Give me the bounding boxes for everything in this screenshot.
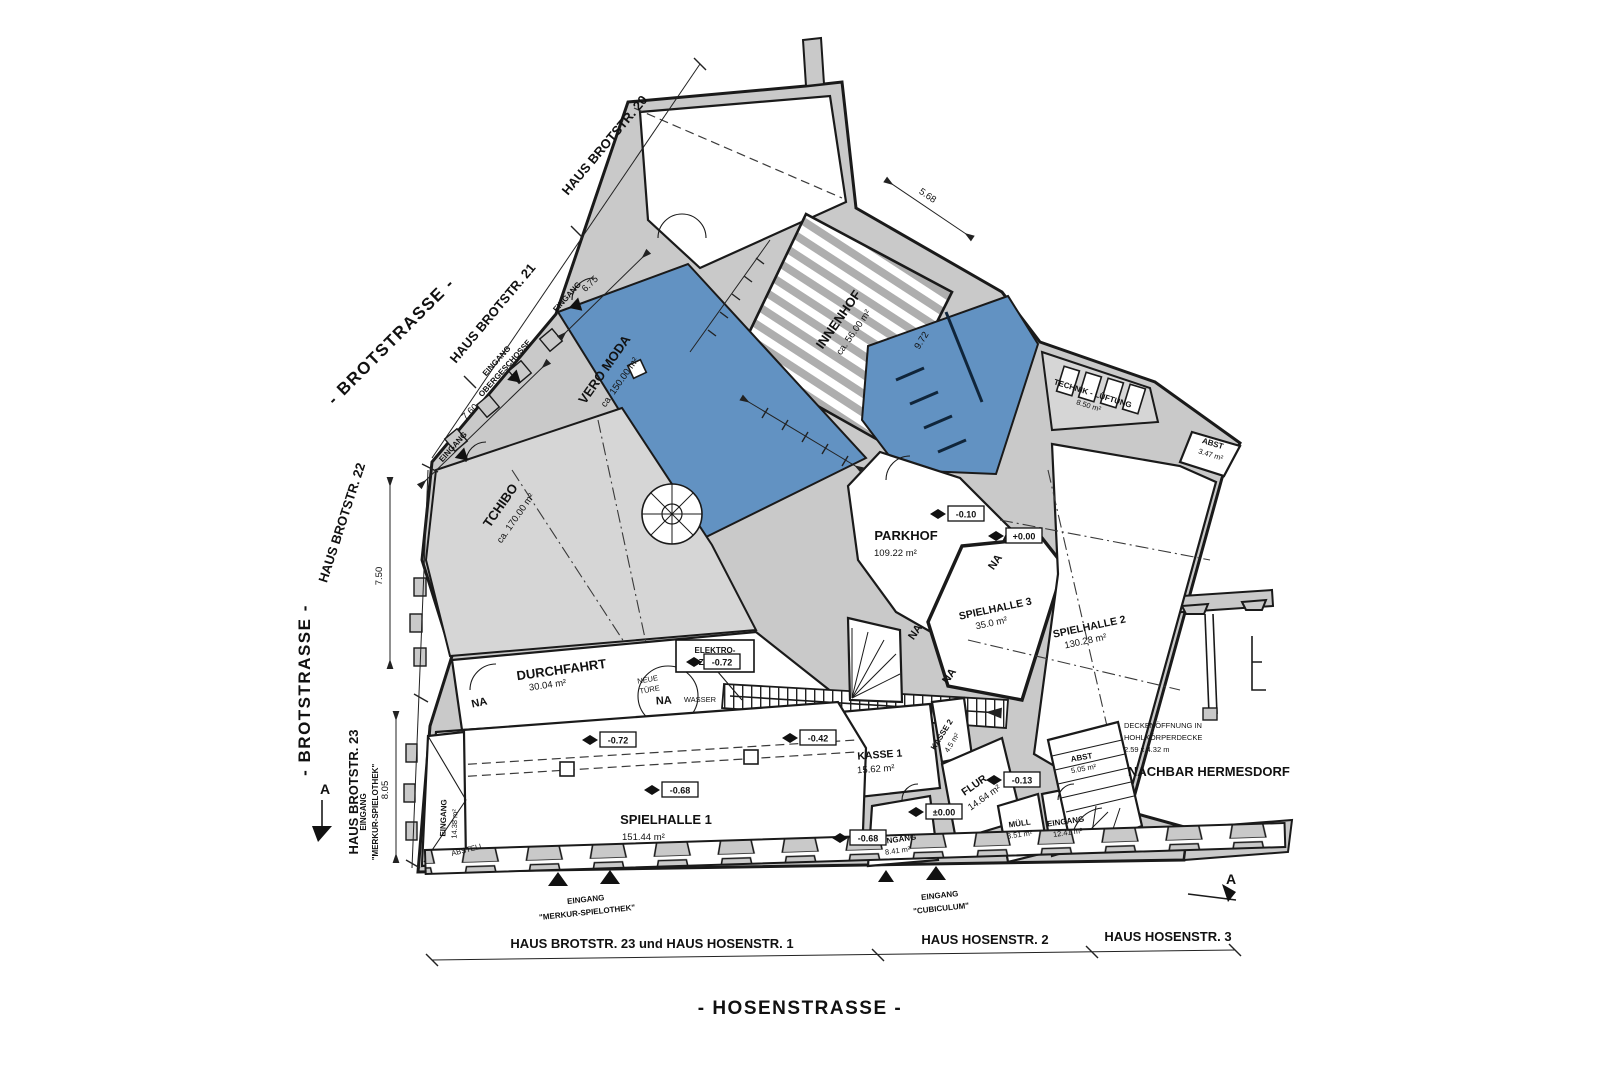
section-marker-left: A [312,781,332,842]
svg-text:"MERKUR-SPIELOTHEK": "MERKUR-SPIELOTHEK" [371,764,380,861]
floor-plan-page: - BROTSTRASSE - - BROTSTRASSE - - HOSENS… [0,0,1620,1080]
wall-stub-top [803,38,824,86]
house-brotstr-22: HAUS BROTSTR. 22 [315,461,368,584]
svg-text:7.50: 7.50 [374,567,385,586]
svg-text:EINGANG: EINGANG [921,889,959,902]
svg-text:A: A [1226,871,1236,887]
label-spielhalle1: SPIELHALLE 1 [620,812,712,827]
svg-text:EINGANG: EINGANG [359,793,368,830]
label-spielhalle1-area: 151.44 m² [622,832,665,843]
floor-plan-drawing: - BROTSTRASSE - - BROTSTRASSE - - HOSENS… [0,0,1620,1080]
street-brotstrasse-diagonal: - BROTSTRASSE - [324,274,459,409]
svg-text:"CUBICULUM": "CUBICULUM" [913,901,970,916]
spiral-stair [642,484,702,544]
svg-text:-0.13: -0.13 [1012,776,1033,786]
svg-text:-0.42: -0.42 [808,734,829,744]
annotation-decken-2: HOHLKÖRPERDECKE [1124,733,1202,742]
label-eingang-links: EINGANG [438,799,448,837]
svg-text:±0.00: ±0.00 [933,808,955,818]
house-bottom-3: HAUS HOSENSTR. 3 [1104,929,1231,944]
annotation-nachbar: NACHBAR HERMESDORF [1128,764,1290,779]
svg-text:-0.72: -0.72 [712,658,733,668]
svg-text:-0.10: -0.10 [956,510,977,520]
label-eingang-links-area: 14.38 m² [449,808,459,838]
label-parkhof-area: 109.22 m² [874,548,917,559]
street-brotstrasse-vertical: - BROTSTRASSE - [295,604,314,776]
svg-text:EINGANG: EINGANG [567,893,605,906]
svg-text:-0.72: -0.72 [608,736,629,746]
svg-text:-0.68: -0.68 [670,786,691,796]
winder-stair [848,618,902,702]
street-hosenstrasse: - HOSENSTRASSE - [698,998,903,1019]
svg-text:A: A [320,781,330,797]
house-brotstr-23: HAUS BROTSTR. 23 [346,730,361,855]
svg-text:"MERKUR-SPIELOTHEK": "MERKUR-SPIELOTHEK" [539,903,636,922]
svg-text:NA: NA [655,694,672,707]
svg-text:8.05: 8.05 [380,781,391,800]
label-parkhof: PARKHOF [874,528,937,543]
svg-text:-0.68: -0.68 [858,834,879,844]
section-marker-right: A [1188,871,1236,902]
annotation-decken-1: DECKENÖFFNUNG IN [1124,721,1202,730]
annotation-wasser: WASSER [684,695,717,704]
svg-text:+0.00: +0.00 [1013,532,1036,542]
annotation-decken-3: 2.59 x 4.32 m [1124,745,1169,754]
house-bottom-2: HAUS HOSENSTR. 2 [921,932,1048,947]
house-bottom-1: HAUS BROTSTR. 23 und HAUS HOSENSTR. 1 [510,936,793,951]
room-eingang-links [422,732,466,866]
